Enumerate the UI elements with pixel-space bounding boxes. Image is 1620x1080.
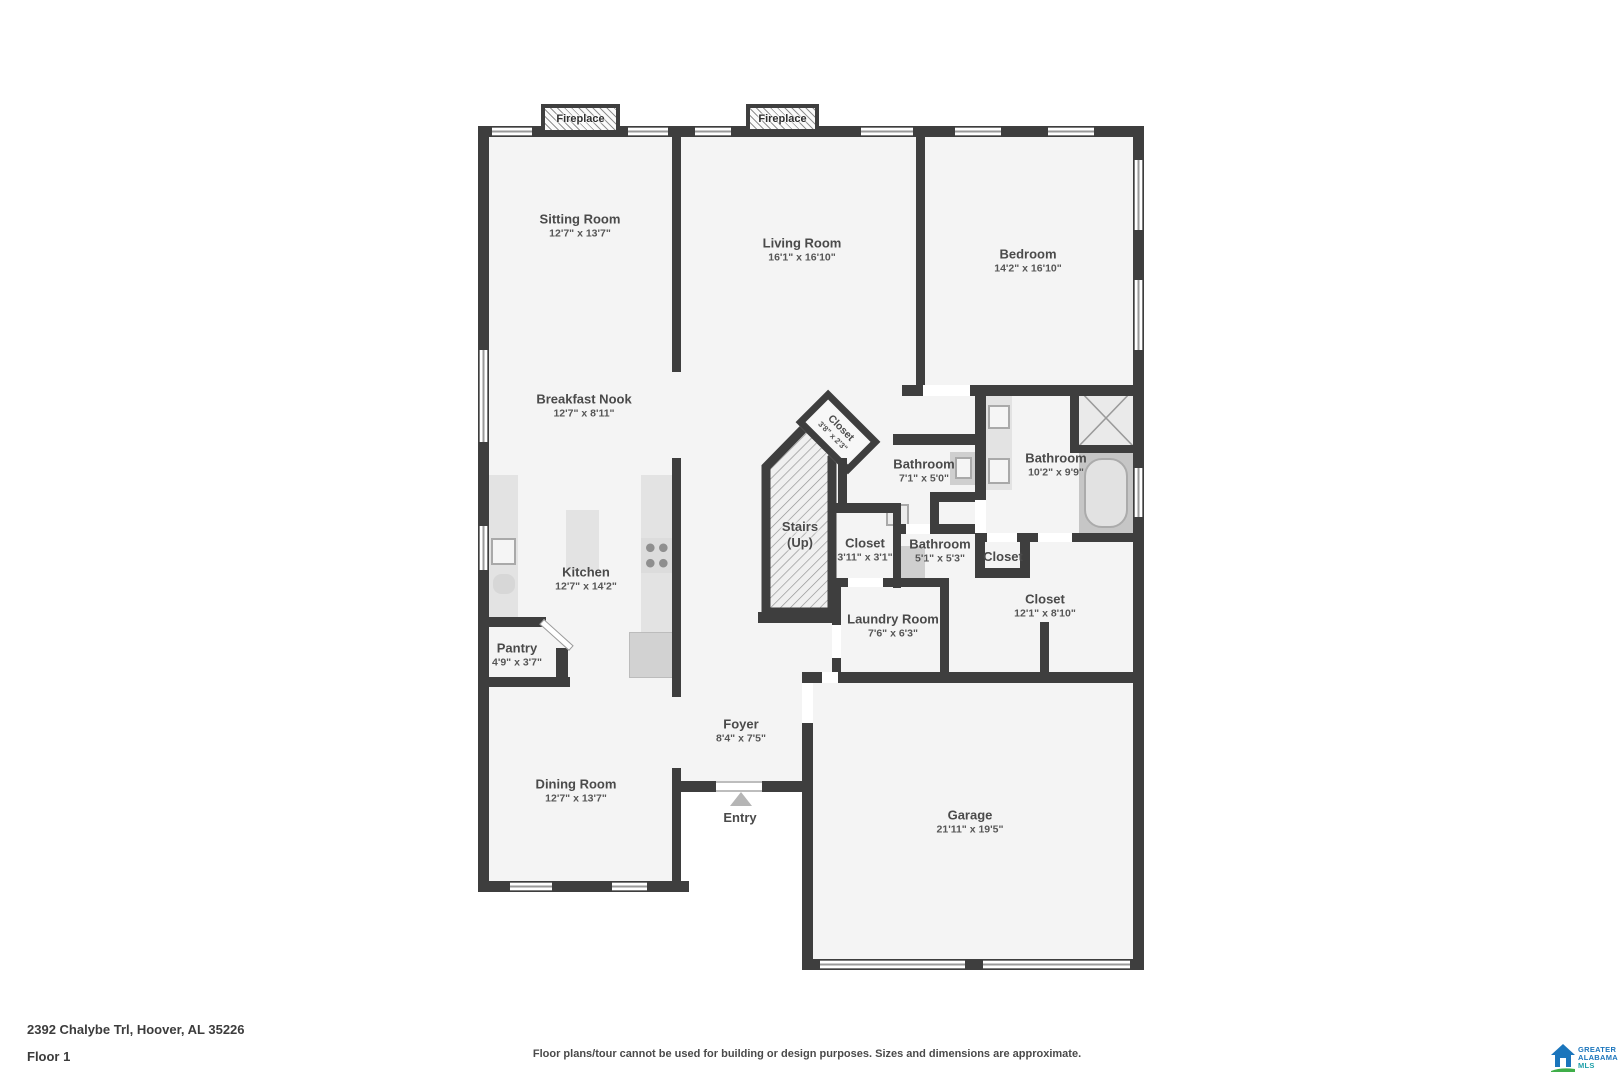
room-dimensions: 12'7" x 14'2" xyxy=(555,581,617,594)
room-name: Stairs xyxy=(782,519,818,535)
room-label-breakfast-nook: Breakfast Nook12'7" x 8'11" xyxy=(536,391,631,420)
room-label-bathroom-half: Bathroom5'1" x 5'3" xyxy=(909,536,970,565)
floor-number: Floor 1 xyxy=(27,1049,70,1064)
window xyxy=(1048,127,1094,136)
room-label-bedroom: Bedroom14'2" x 16'10" xyxy=(994,246,1062,275)
room-name: Pantry xyxy=(492,640,542,656)
room-dimensions: 21'11" x 19'5" xyxy=(937,824,1004,837)
room-label-stairs: Stairs(Up) xyxy=(782,519,818,552)
room-dimensions: (Up) xyxy=(782,535,818,551)
fireplace-label: Fireplace xyxy=(556,113,604,125)
wall xyxy=(916,126,925,394)
kitchen-sink xyxy=(491,538,516,565)
door-opening xyxy=(822,672,838,683)
room-label-living-room: Living Room16'1" x 16'10" xyxy=(763,235,842,264)
wall xyxy=(893,434,983,445)
wall xyxy=(893,503,901,588)
window xyxy=(955,127,1001,136)
room-label-closet-large: Closet12'1" x 8'10" xyxy=(1014,591,1076,620)
wall xyxy=(1070,386,1079,447)
room-label-garage: Garage21'11" x 19'5" xyxy=(937,807,1004,836)
door-opening xyxy=(975,500,986,533)
wall xyxy=(1040,622,1049,672)
room-dimensions: 12'7" x 8'11" xyxy=(536,408,631,421)
room-label-foyer: Foyer8'4" x 7'5" xyxy=(716,716,766,745)
room-dimensions: 7'6" x 6'3" xyxy=(847,628,939,641)
wall xyxy=(478,617,546,627)
wall xyxy=(1133,126,1144,970)
room-name: Dining Room xyxy=(536,776,617,792)
wall xyxy=(902,385,923,396)
room-name: Closet xyxy=(983,549,1023,565)
room-dimensions: 5'1" x 5'3" xyxy=(909,553,970,566)
room-name: Closet xyxy=(837,535,892,551)
room-name: Garage xyxy=(937,807,1004,823)
window xyxy=(479,526,488,570)
wall xyxy=(478,677,570,687)
shower xyxy=(1079,390,1133,446)
wall xyxy=(758,612,841,623)
room-dimensions: 12'7" x 13'7" xyxy=(540,228,621,241)
wall xyxy=(802,672,1144,683)
property-address: 2392 Chalybe Trl, Hoover, AL 35226 xyxy=(27,1022,245,1037)
window xyxy=(492,127,532,136)
room-label-closet-small: Closet xyxy=(983,549,1023,565)
room-label-dining-room: Dining Room12'7" x 13'7" xyxy=(536,776,617,805)
room-name: Bathroom xyxy=(1025,450,1086,466)
room-label-sitting-room: Sitting Room12'7" x 13'7" xyxy=(540,211,621,240)
mls-logo-line3: MLS xyxy=(1578,1062,1618,1070)
room-dimensions: 10'2" x 9'9" xyxy=(1025,467,1086,480)
fireplace-label: Fireplace xyxy=(758,113,806,125)
mls-logo: GREATER ALABAMA MLS xyxy=(1550,1042,1618,1074)
room-label-laundry-room: Laundry Room7'6" x 6'3" xyxy=(847,611,939,640)
room-label-bathroom-hall: Bathroom7'1" x 5'0" xyxy=(893,456,954,485)
door-opening xyxy=(802,683,813,723)
window xyxy=(1134,280,1143,350)
fireplace: Fireplace xyxy=(746,104,819,133)
room-name: Closet xyxy=(1014,591,1076,607)
wall xyxy=(940,578,949,672)
room-label-bathroom-master: Bathroom10'2" x 9'9" xyxy=(1025,450,1086,479)
door-opening xyxy=(906,524,930,534)
window xyxy=(695,127,731,136)
mls-logo-text: GREATER ALABAMA MLS xyxy=(1578,1046,1618,1070)
window xyxy=(861,127,913,136)
floor-plan: Fireplace Fireplace 2392 Chalybe Trl, Ho… xyxy=(0,0,1620,1080)
room-name: Laundry Room xyxy=(847,611,939,627)
garage-door xyxy=(820,960,965,969)
wall xyxy=(478,126,489,892)
door-opening xyxy=(716,781,762,792)
room-label-entry: Entry xyxy=(723,810,756,826)
door-opening xyxy=(848,578,883,587)
wall xyxy=(975,568,1030,578)
stove xyxy=(641,538,672,573)
wall xyxy=(970,385,1144,396)
garage-door xyxy=(983,960,1130,969)
room-name: Bathroom xyxy=(909,536,970,552)
door-opening xyxy=(987,533,1017,542)
wall xyxy=(672,768,681,892)
room-name: Bathroom xyxy=(893,456,954,472)
room-name: Kitchen xyxy=(555,564,617,580)
wall xyxy=(672,126,681,372)
disclaimer-text: Floor plans/tour cannot be used for buil… xyxy=(533,1048,1081,1060)
room-name: Living Room xyxy=(763,235,842,251)
room-dimensions: 3'11" x 3'1" xyxy=(837,552,892,565)
room-dimensions: 7'1" x 5'0" xyxy=(893,473,954,486)
room-dimensions: 16'1" x 16'10" xyxy=(763,252,842,265)
bathroom-sink xyxy=(988,405,1010,429)
room-label-kitchen: Kitchen12'7" x 14'2" xyxy=(555,564,617,593)
wall xyxy=(975,394,986,500)
window xyxy=(628,127,668,136)
room-name: Foyer xyxy=(716,716,766,732)
window xyxy=(612,882,647,891)
kitchen-island xyxy=(566,510,599,570)
room-name: Breakfast Nook xyxy=(536,391,631,407)
bathroom-sink xyxy=(988,458,1010,484)
room-name: Bedroom xyxy=(994,246,1062,262)
room-name: Sitting Room xyxy=(540,211,621,227)
bathroom-sink xyxy=(955,457,972,479)
window xyxy=(510,882,552,891)
mls-house-icon xyxy=(1550,1042,1576,1074)
dishwasher xyxy=(493,574,515,594)
window xyxy=(1134,160,1143,230)
room-dimensions: 8'4" x 7'5" xyxy=(716,733,766,746)
room-dimensions: 4'9" x 3'7" xyxy=(492,657,542,670)
window xyxy=(1134,468,1143,517)
door-opening xyxy=(1038,533,1072,542)
room-dimensions: 14'2" x 16'10" xyxy=(994,263,1062,276)
door-opening xyxy=(832,625,841,658)
wall xyxy=(672,458,681,697)
wall xyxy=(832,503,901,513)
bathtub xyxy=(1084,458,1128,528)
room-label-closet-hall: Closet3'11" x 3'1" xyxy=(837,535,892,564)
window xyxy=(479,350,488,442)
fireplace: Fireplace xyxy=(541,104,620,134)
entry-arrow xyxy=(730,792,752,806)
room-dimensions: 12'7" x 13'7" xyxy=(536,793,617,806)
room-name: Entry xyxy=(723,810,756,826)
door-opening xyxy=(923,385,970,396)
refrigerator xyxy=(629,632,673,678)
room-dimensions: 12'1" x 8'10" xyxy=(1014,608,1076,621)
room-label-pantry: Pantry4'9" x 3'7" xyxy=(492,640,542,669)
